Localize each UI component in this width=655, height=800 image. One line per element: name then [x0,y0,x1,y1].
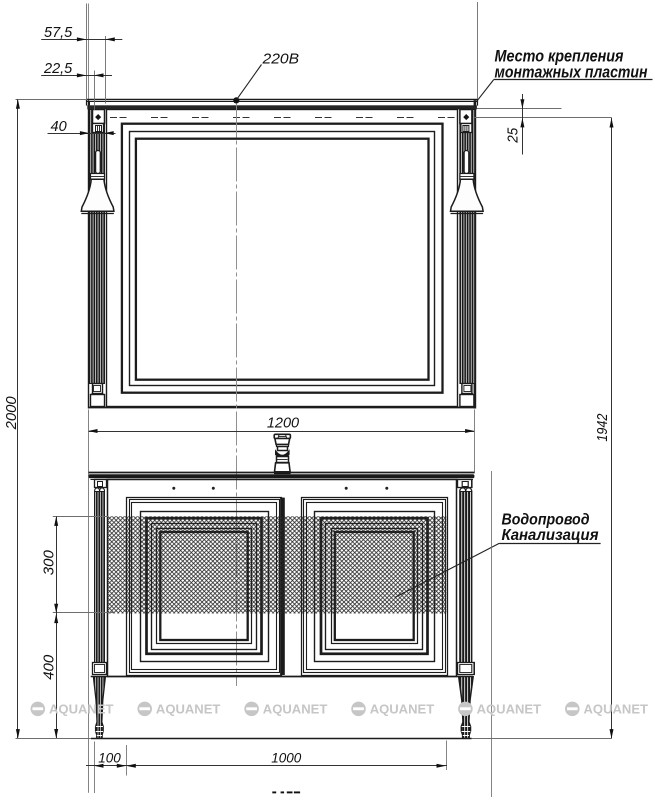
svg-text:1942: 1942 [595,414,611,442]
svg-text:300: 300 [41,550,57,575]
svg-text:1200: 1200 [267,416,299,432]
svg-text:2000: 2000 [4,396,20,430]
svg-text:Водопровод: Водопровод [502,511,590,528]
svg-text:AQUANET: AQUANET [263,702,328,717]
svg-text:AQUANET: AQUANET [370,702,435,717]
svg-text:40: 40 [51,119,67,135]
svg-text:220В: 220В [261,51,299,68]
svg-text:AQUANET: AQUANET [156,702,221,717]
svg-text:AQUANET: AQUANET [49,702,114,717]
svg-text:AQUANET: AQUANET [477,702,542,717]
svg-text:AQUANET: AQUANET [584,702,649,717]
svg-text:22,5: 22,5 [43,61,73,77]
svg-text:монтажных пластин: монтажных пластин [495,63,648,81]
svg-text:25: 25 [506,127,522,144]
svg-text:1000: 1000 [271,750,302,765]
svg-text:400: 400 [41,655,57,680]
svg-text:Канализация: Канализация [502,527,599,544]
svg-text:57,5: 57,5 [44,25,73,41]
svg-text:100: 100 [98,751,121,766]
